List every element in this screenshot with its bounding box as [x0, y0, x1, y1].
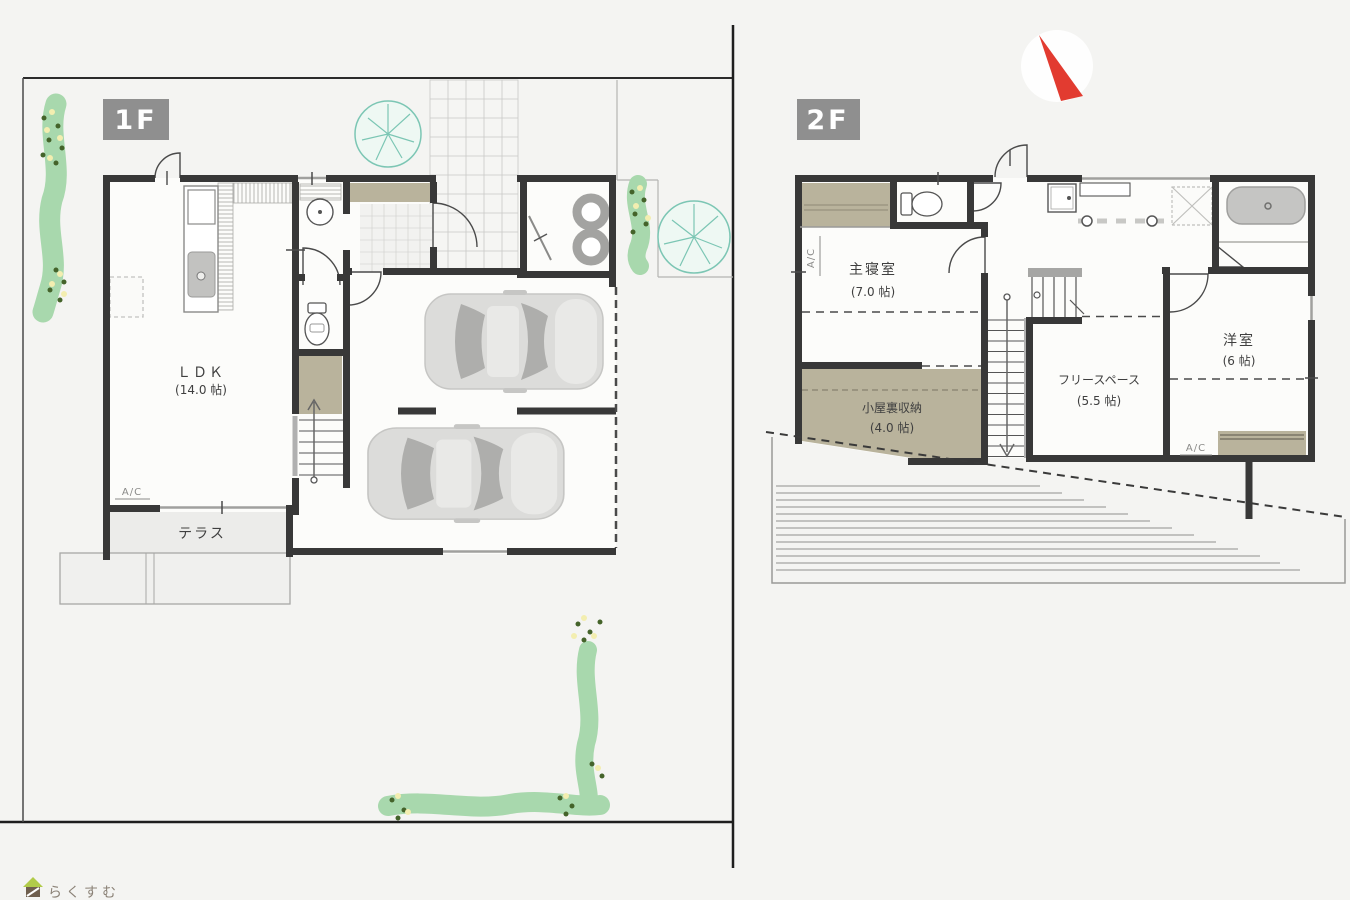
tree-top-icon — [355, 101, 421, 167]
genkan-tiles — [360, 204, 432, 272]
approach-tiles — [430, 80, 518, 272]
floor1-badge-label: 1F — [114, 105, 157, 136]
ac-label-2f-right: A/C — [1186, 443, 1206, 454]
floor2-badge: 2F — [797, 99, 860, 140]
tree-right-icon — [658, 201, 730, 273]
ac-label-2f-left: A/C — [806, 248, 817, 268]
freespace-size: (5.5 帖) — [1077, 393, 1121, 408]
western-room-label: 洋室 — [1223, 332, 1255, 349]
washbasin-2f-icon — [1048, 184, 1076, 212]
master-bedroom-size: (7.0 帖) — [851, 284, 895, 299]
floorplan-drawing: ＬＤＫ (14.0 帖) テラス A/C — [0, 0, 1350, 900]
western-room-size: (6 帖) — [1223, 353, 1256, 368]
hedge-right-top — [630, 184, 652, 266]
toilet-2f-icon — [901, 192, 942, 216]
ldk-label: ＬＤＫ — [177, 365, 225, 381]
car-bottom-icon — [368, 424, 564, 523]
floor2-badge-label: 2F — [806, 105, 849, 136]
hedge-left — [41, 104, 68, 312]
shoe-cabinet — [350, 183, 430, 202]
car-top-icon — [425, 290, 603, 393]
logo-text: らくすむ — [48, 885, 120, 900]
terrace-label: テラス — [178, 526, 226, 542]
hedge-bottom — [388, 615, 605, 821]
understair-storage — [299, 354, 342, 414]
logo-house-roof-icon — [23, 877, 43, 887]
site-logo: らくすむ — [23, 877, 120, 900]
master-bedroom-label: 主寝室 — [849, 261, 897, 278]
terrace-area — [60, 512, 290, 604]
bathtub-icon — [1227, 187, 1305, 224]
floor2-plan: 主寝室 (7.0 帖) 小屋裏収納 (4.0 帖) フリースペース (5.5 帖… — [766, 99, 1345, 583]
ldk-size-label: (14.0 帖) — [175, 382, 227, 397]
ac-label-1f: A/C — [122, 487, 142, 498]
floorplan-page: ＬＤＫ (14.0 帖) テラス A/C — [0, 0, 1350, 900]
floor-storage-hatch — [110, 277, 143, 317]
compass-icon — [1021, 30, 1093, 102]
attic-size: (4.0 帖) — [870, 420, 914, 435]
floor1-plan: ＬＤＫ (14.0 帖) テラス A/C — [41, 80, 731, 821]
freespace-label: フリースペース — [1058, 373, 1140, 387]
skylight-box-icon — [1172, 187, 1212, 225]
floor1-badge: 1F — [103, 99, 169, 140]
sink-faucet-icon — [197, 272, 205, 280]
attic-label: 小屋裏収納 — [862, 400, 922, 415]
counter-2f — [1080, 183, 1130, 196]
toilet-1f-icon — [305, 303, 329, 345]
